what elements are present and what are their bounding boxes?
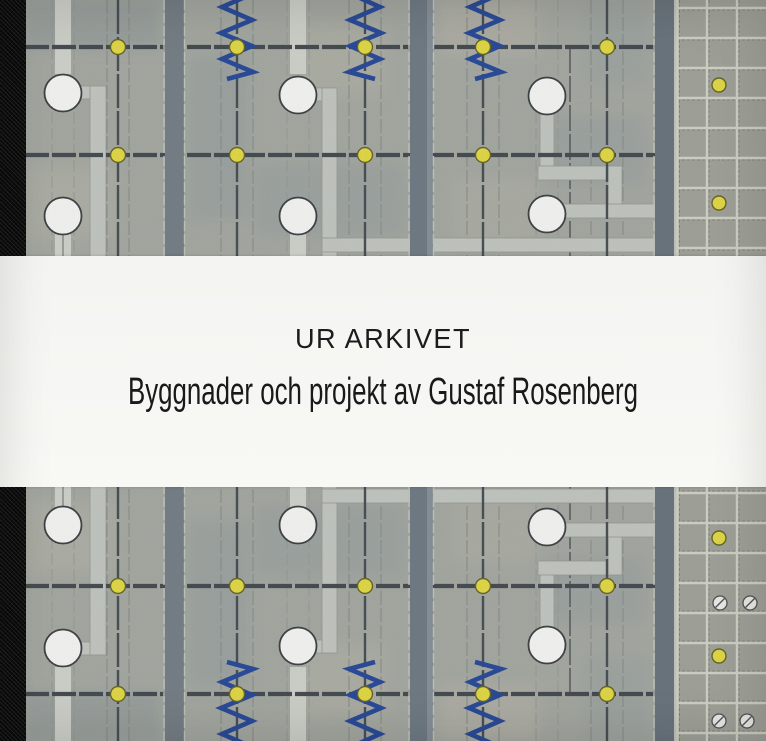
cover-subtitle: Byggnader och projekt av Gustaf Rosenber… xyxy=(123,373,644,411)
book-cover: UR ARKIVET Byggnader och projekt av Gust… xyxy=(0,0,766,741)
cover-title: UR ARKIVET xyxy=(11,325,754,353)
title-band: UR ARKIVET Byggnader och projekt av Gust… xyxy=(0,256,766,487)
